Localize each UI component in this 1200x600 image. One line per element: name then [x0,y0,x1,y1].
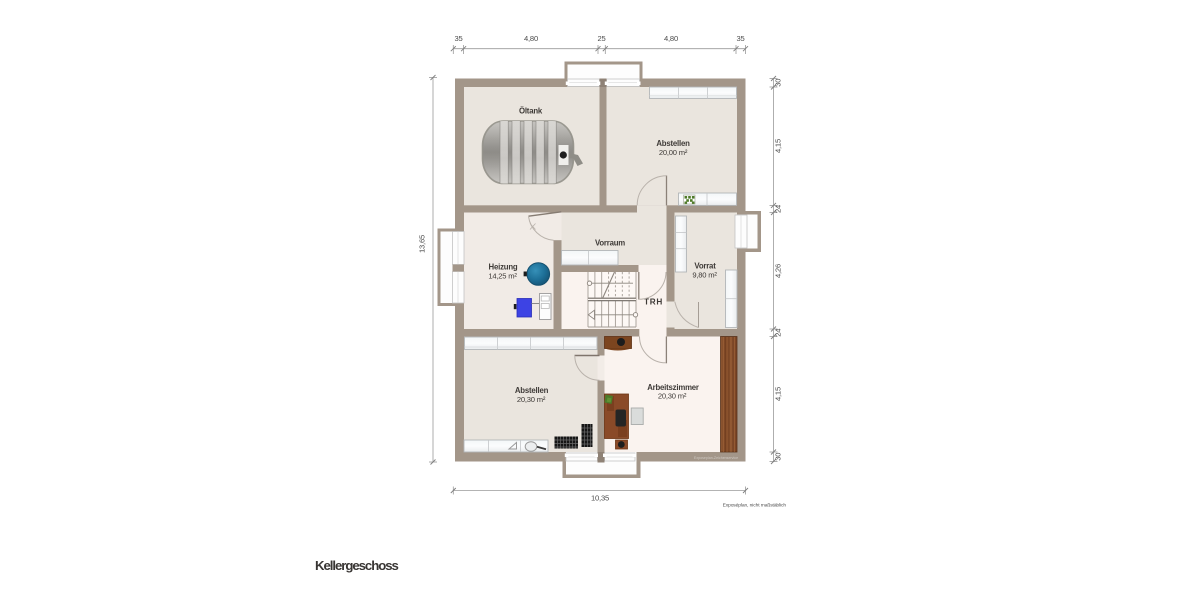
svg-text:TRH: TRH [644,298,663,307]
svg-text:35: 35 [736,34,744,43]
svg-text:Vorraum: Vorraum [595,239,625,248]
svg-text:4,15: 4,15 [774,139,783,153]
svg-text:20,30 m²: 20,30 m² [658,392,687,401]
svg-text:20,00 m²: 20,00 m² [659,148,688,157]
svg-text:24: 24 [774,205,783,213]
svg-text:Abstellen: Abstellen [656,139,690,148]
svg-text:Öltank: Öltank [519,107,543,116]
svg-text:4,26: 4,26 [774,264,783,278]
svg-text:4,15: 4,15 [774,387,783,401]
svg-text:Exposéplan, nicht maßstäblich: Exposéplan, nicht maßstäblich [723,503,787,509]
svg-text:Vorrat: Vorrat [694,262,716,271]
svg-text:35: 35 [454,34,462,43]
svg-text:25: 25 [597,34,605,43]
svg-text:20,30 m²: 20,30 m² [517,395,546,404]
svg-text:Kellergeschoss: Kellergeschoss [315,558,399,573]
svg-text:4,80: 4,80 [524,34,538,43]
svg-text:14,25 m²: 14,25 m² [488,272,517,281]
svg-text:4,80: 4,80 [664,34,678,43]
svg-text:9,80 m²: 9,80 m² [692,271,717,280]
svg-text:Abstellen: Abstellen [515,386,549,395]
svg-text:Exposeplan-Zeichenservice: Exposeplan-Zeichenservice [694,456,738,460]
svg-text:13,65: 13,65 [418,235,427,253]
svg-text:30: 30 [774,453,783,461]
svg-text:30: 30 [774,79,783,87]
svg-text:24: 24 [774,329,783,337]
svg-text:10,35: 10,35 [591,494,609,503]
svg-text:Heizung: Heizung [489,263,518,272]
